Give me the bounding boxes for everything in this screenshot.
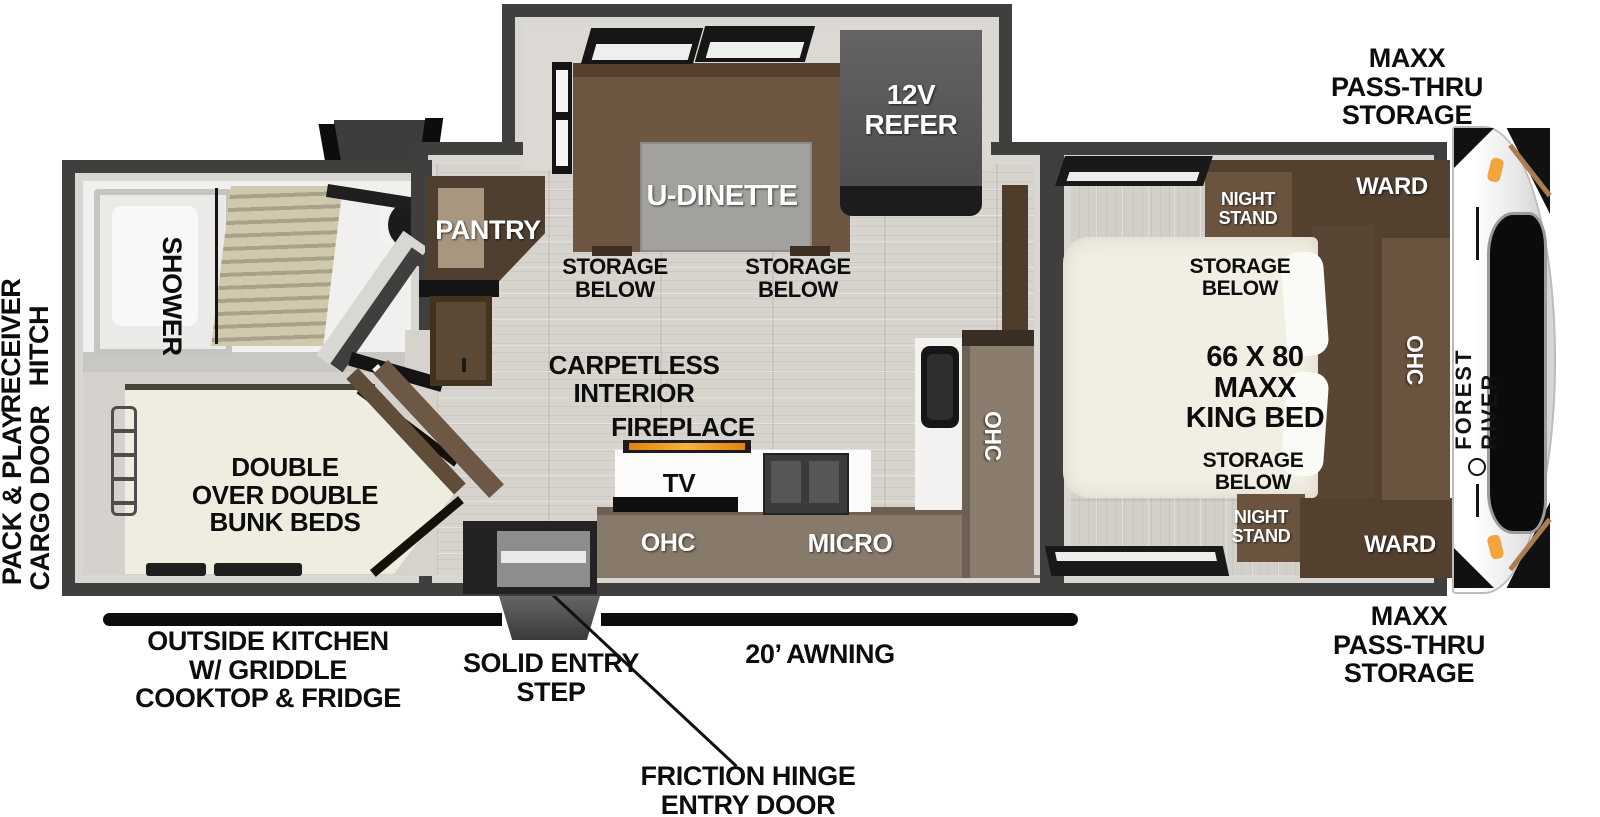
shower-curtain-track [215, 188, 218, 344]
entry-step-tread [501, 551, 586, 563]
brand-dash-right [1476, 207, 1479, 260]
kitchen-side-cabinet-edge [962, 334, 970, 578]
label-bunk-beds: DOUBLE OVER DOUBLE BUNK BEDS [135, 454, 435, 537]
label-ward-top: WARD [1342, 174, 1442, 199]
fireplace-flame [629, 443, 745, 450]
shower-curtain [211, 186, 343, 346]
label-cargo-door: PACK & PLAY CARGO DOOR [0, 388, 54, 608]
kitchen-side-cabinet-cap [962, 330, 1040, 346]
tv-on-counter [613, 497, 738, 512]
label-micro: MICRO [798, 530, 902, 558]
exterior-entry-step [499, 596, 600, 640]
label-king-bed: 66 X 80 MAXX KING BED [1130, 342, 1380, 434]
bunk-ladder [111, 406, 137, 516]
label-storage-below-dinette-left: STORAGE BELOW [535, 255, 695, 302]
hall-cabinet-handle [462, 358, 466, 372]
bedroom-wall-band-left [1034, 163, 1040, 575]
floorplan-canvas: FOREST RIVER PANTRY U-DINETTE 12V REFER … [0, 0, 1600, 817]
bedroom-wall [1040, 155, 1064, 583]
brand-dash-left [1476, 484, 1479, 517]
bedroom-entry-cabinet [1002, 185, 1028, 337]
label-maxx-storage-bottom: MAXX PASS-THRU STORAGE [1249, 602, 1569, 688]
hall-counter-shadow [419, 280, 499, 297]
label-night-stand-bottom: NIGHT STAND [1220, 508, 1302, 546]
dinette-bench-back-trim [573, 63, 850, 77]
brand-logo: FOREST RIVER [1464, 207, 1490, 517]
label-storage-below-bed-top: STORAGE BELOW [1160, 256, 1320, 301]
cooktop-burner-right [809, 461, 839, 503]
awning-line-left [103, 613, 502, 626]
label-pantry: PANTRY [408, 216, 568, 245]
bedroom-window-top-glass [1067, 172, 1200, 181]
label-outside-kitchen: OUTSIDE KITCHEN W/ GRIDDLE COOKTOP & FRI… [98, 627, 438, 713]
label-entry-step: SOLID ENTRY STEP [431, 649, 671, 706]
awning-line-right [601, 613, 1078, 626]
label-shower: SHOWER [158, 221, 186, 371]
bunk-wall-window-1 [146, 563, 206, 576]
label-carpetless-interior: CARPETLESS INTERIOR [504, 352, 764, 407]
bedroom-window-bottom-glass [1055, 552, 1217, 561]
label-tv: TV [649, 470, 709, 498]
bunk-headboard-trim [125, 384, 375, 391]
label-ohc-base: OHC [628, 530, 708, 557]
label-fireplace: FIREPLACE [603, 414, 763, 442]
label-ohc-side: OHC [980, 391, 1006, 481]
label-night-stand-top: NIGHT STAND [1207, 190, 1289, 228]
cooktop-burner-left [771, 461, 801, 503]
slideout-side-window-pane-2 [556, 120, 568, 166]
slideout-skylight-2-glass [706, 42, 805, 58]
bedroom-window-bottom [1045, 546, 1229, 576]
bunk-wall-window-2 [214, 563, 302, 576]
forest-river-emblem-icon [1468, 458, 1486, 476]
kitchen-sink-basin [927, 354, 953, 420]
slideout-side-window-pane-1 [556, 70, 568, 112]
label-ward-bottom: WARD [1350, 532, 1450, 557]
label-ohc-bedroom: OHC [1402, 315, 1428, 405]
label-entry-door: FRICTION HINGE ENTRY DOOR [598, 762, 898, 817]
bedroom-window-top [1055, 156, 1213, 186]
label-awning: 20’ AWNING [700, 640, 940, 669]
label-u-dinette: U-DINETTE [632, 181, 812, 212]
brand-name: FOREST RIVER [1451, 268, 1503, 450]
hall-cabinet-face [436, 302, 486, 380]
label-storage-below-dinette-right: STORAGE BELOW [718, 255, 878, 302]
label-storage-below-bed-bottom: STORAGE BELOW [1173, 450, 1333, 495]
refrigerator-base [840, 186, 982, 216]
label-refrigerator: 12V REFER [851, 80, 971, 139]
label-maxx-storage-top: MAXX PASS-THRU STORAGE [1247, 44, 1567, 130]
slideout-skylight-1-glass [592, 44, 693, 60]
